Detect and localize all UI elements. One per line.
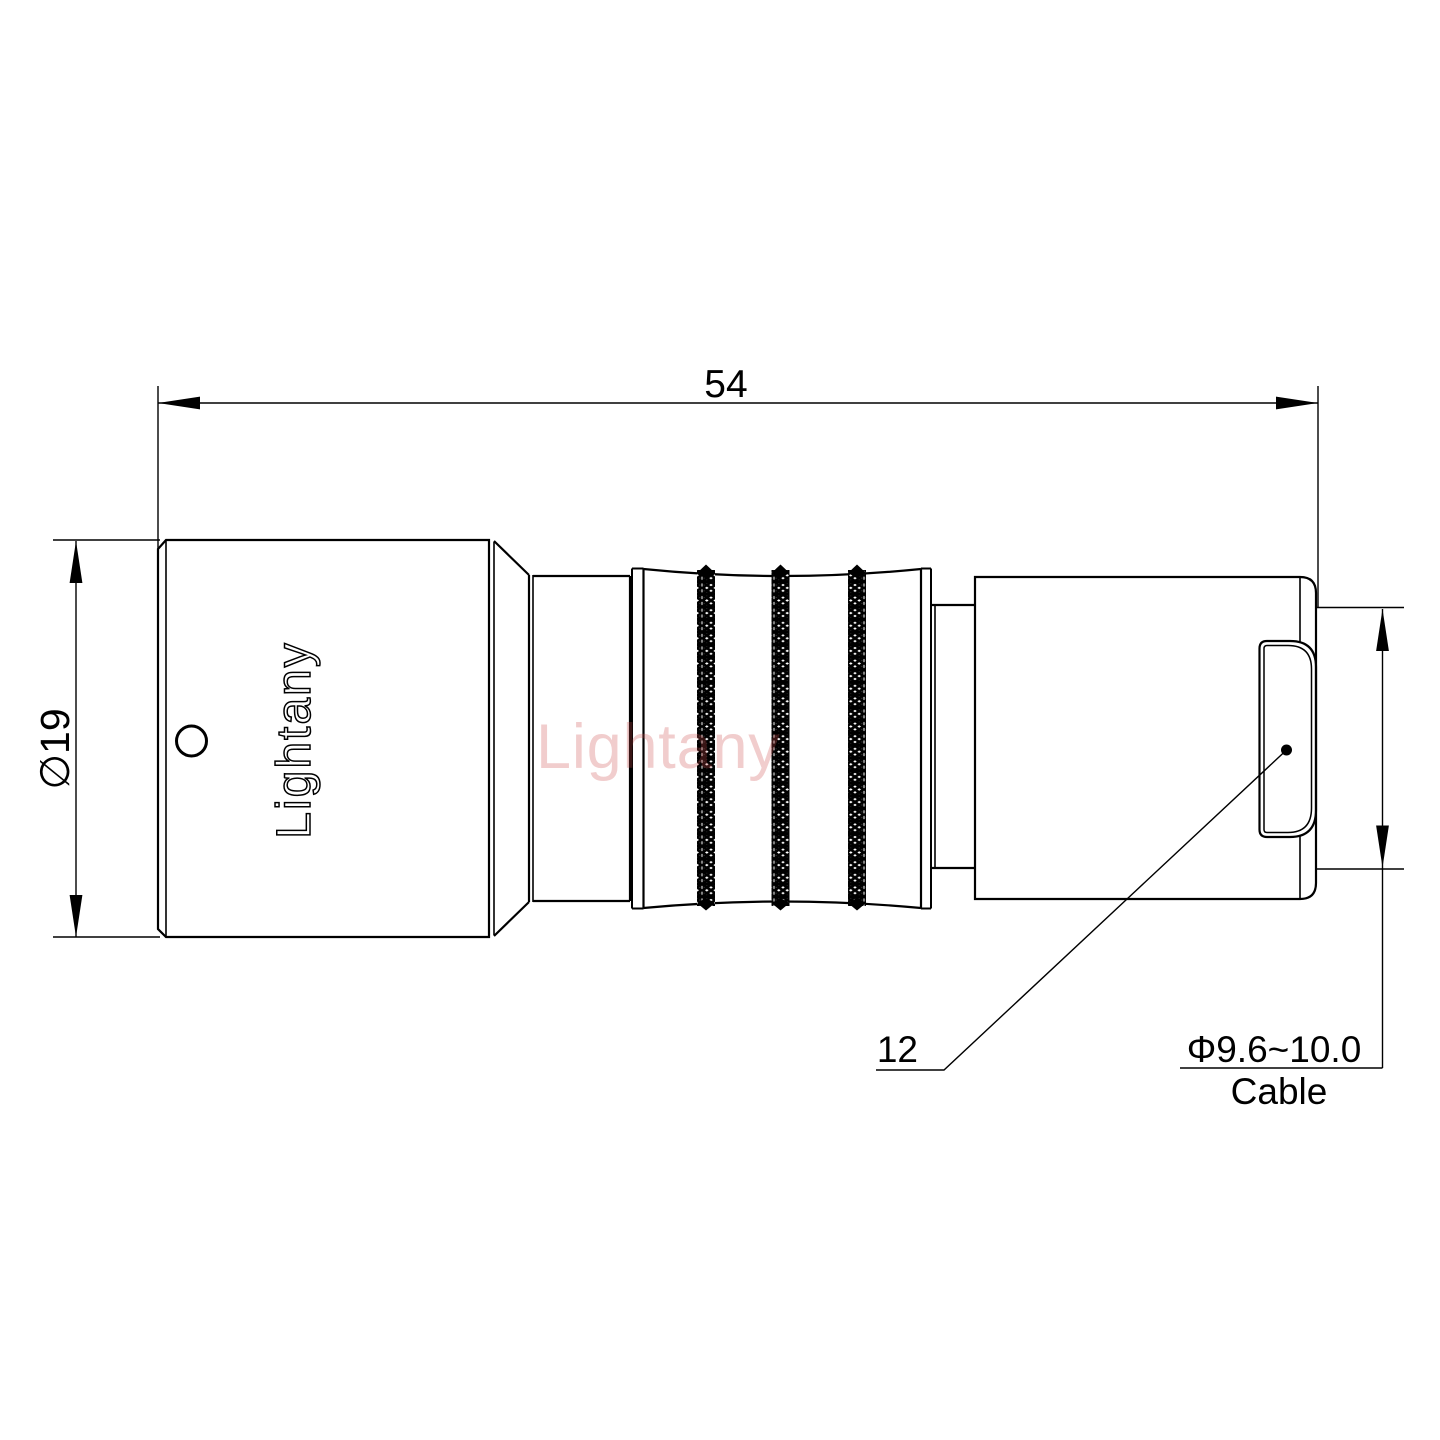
svg-text:54: 54 — [704, 363, 747, 406]
svg-text:Lightany: Lightany — [268, 641, 321, 838]
svg-text:∅19: ∅19 — [32, 708, 78, 789]
svg-text:Φ9.6~10.0: Φ9.6~10.0 — [1187, 1029, 1362, 1070]
svg-text:12: 12 — [877, 1029, 918, 1070]
svg-text:Cable: Cable — [1231, 1071, 1328, 1112]
svg-text:Lightany: Lightany — [536, 712, 781, 782]
